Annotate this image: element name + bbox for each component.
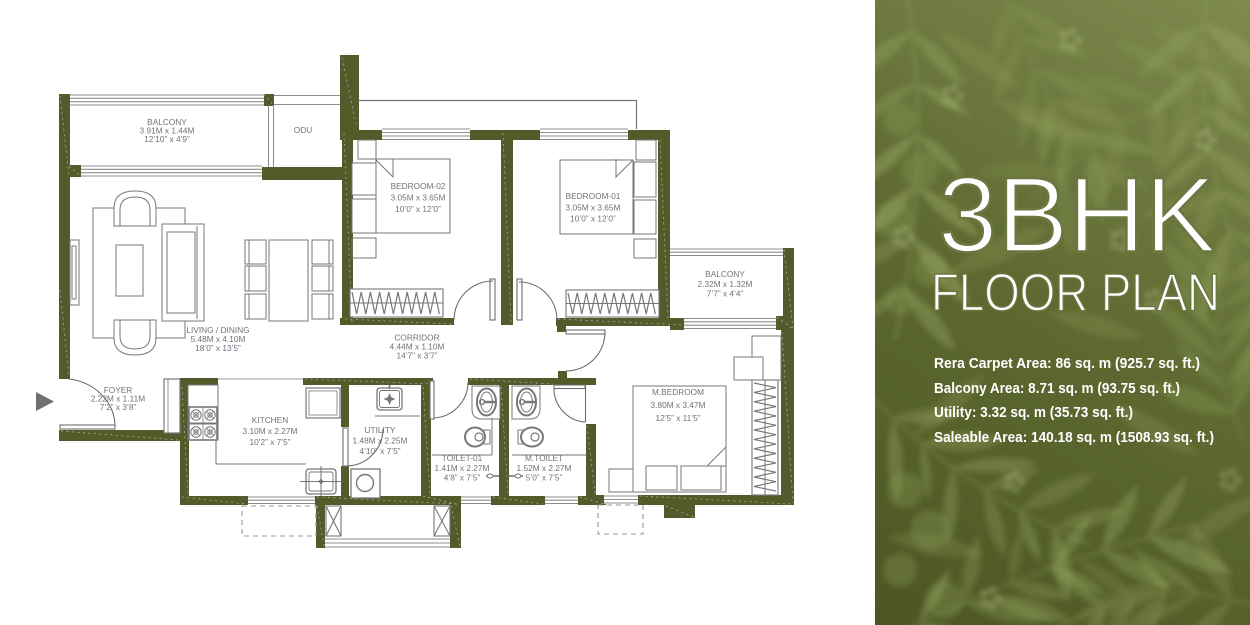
svg-text:5’0” x 7’5”: 5’0” x 7’5” — [526, 473, 563, 483]
svg-text:TOILET-01: TOILET-01 — [442, 453, 483, 463]
svg-text:10’0” x 12’0”: 10’0” x 12’0” — [395, 204, 441, 214]
svg-text:BEDROOM-01: BEDROOM-01 — [566, 191, 621, 201]
svg-text:KITCHEN: KITCHEN — [252, 415, 288, 425]
svg-text:1.48M x 2.25M: 1.48M x 2.25M — [353, 436, 408, 446]
svg-text:4’8” x 7’5”: 4’8” x 7’5” — [444, 473, 481, 483]
svg-text:ODU: ODU — [294, 125, 312, 135]
svg-text:BALCONY: BALCONY — [705, 269, 745, 279]
svg-text:Balcony Area: 8.71 sq. m (93.7: Balcony Area: 8.71 sq. m (93.75 sq. ft.) — [934, 380, 1180, 397]
svg-text:Saleable Area: 140.18 sq. m (1: Saleable Area: 140.18 sq. m (1508.93 sq.… — [934, 429, 1214, 446]
svg-text:Utility: 3.32 sq. m (35.73 sq.: Utility: 3.32 sq. m (35.73 sq. ft.) — [934, 404, 1133, 421]
svg-text:10’2” x 7’5”: 10’2” x 7’5” — [249, 437, 290, 447]
svg-text:7’2” x 3’8”: 7’2” x 3’8” — [100, 402, 137, 412]
svg-text:1.41M x 2.27M: 1.41M x 2.27M — [435, 463, 490, 473]
svg-text:18’0” x 13’5”: 18’0” x 13’5” — [195, 343, 241, 353]
svg-text:3.05M x 3.65M: 3.05M x 3.65M — [391, 193, 446, 203]
svg-text:3.05M x 3.65M: 3.05M x 3.65M — [566, 203, 621, 213]
svg-text:M.TOILET: M.TOILET — [525, 453, 563, 463]
svg-text:BEDROOM-02: BEDROOM-02 — [391, 181, 446, 191]
svg-text:10’0” x 12’0”: 10’0” x 12’0” — [570, 214, 616, 224]
svg-text:2.32M x 1.32M: 2.32M x 1.32M — [698, 279, 753, 289]
svg-text:4’10” x 7’5”: 4’10” x 7’5” — [359, 446, 400, 456]
svg-text:3BHK: 3BHK — [938, 155, 1216, 275]
svg-text:1.52M x 2.27M: 1.52M x 2.27M — [517, 463, 572, 473]
svg-text:UTILITY: UTILITY — [365, 425, 396, 435]
svg-text:3.10M x 2.27M: 3.10M x 2.27M — [243, 426, 298, 436]
svg-text:M.BEDROOM: M.BEDROOM — [652, 387, 704, 397]
svg-text:12’10” x 4’9”: 12’10” x 4’9” — [144, 134, 190, 144]
svg-text:12’5” x 11’5”: 12’5” x 11’5” — [655, 413, 700, 423]
svg-text:Rera Carpet Area: 86 sq. m (92: Rera Carpet Area: 86 sq. m (925.7 sq. ft… — [934, 355, 1200, 372]
svg-text:FLOOR PLAN: FLOOR PLAN — [931, 264, 1220, 323]
svg-text:14’7” x 3’7”: 14’7” x 3’7” — [396, 351, 437, 361]
svg-text:7’7” x 4’4”: 7’7” x 4’4” — [707, 289, 744, 299]
svg-text:3.80M x 3.47M: 3.80M x 3.47M — [651, 400, 706, 410]
